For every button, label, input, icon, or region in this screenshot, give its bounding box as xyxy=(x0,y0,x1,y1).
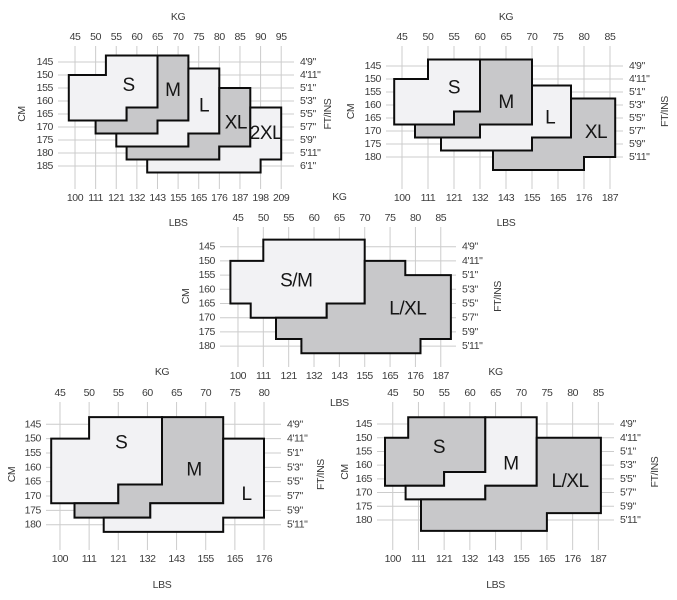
axis-title-kg: KG xyxy=(488,366,503,378)
ft-tick-label: 4'9" xyxy=(620,418,636,430)
axis-title-lbs: LBS xyxy=(153,579,172,591)
kg-tick-label: 55 xyxy=(439,387,450,399)
ft-tick-label: 5'11" xyxy=(620,514,641,526)
cm-tick-label: 175 xyxy=(199,326,216,338)
kg-tick-label: 50 xyxy=(90,31,101,43)
lbs-tick-label: 155 xyxy=(170,192,187,204)
cm-tick-label: 180 xyxy=(356,514,373,526)
kg-tick-label: 60 xyxy=(131,31,142,43)
lbs-tick-label: 187 xyxy=(433,370,450,382)
cm-tick-label: 165 xyxy=(37,108,54,120)
lbs-tick-label: 198 xyxy=(252,192,269,204)
lbs-tick-label: 187 xyxy=(232,192,249,204)
kg-tick-label: 75 xyxy=(542,387,553,399)
ft-tick-label: 5'9" xyxy=(629,138,645,150)
cm-tick-label: 180 xyxy=(199,340,216,352)
kg-tick-label: 55 xyxy=(449,31,460,43)
lbs-tick-label: 111 xyxy=(88,192,103,204)
kg-tick-label: 45 xyxy=(55,387,66,399)
kg-tick-label: 65 xyxy=(171,387,182,399)
kg-tick-label: 55 xyxy=(113,387,124,399)
ft-tick-label: 5'3" xyxy=(300,95,316,107)
lbs-tick-label: 143 xyxy=(331,370,348,382)
kg-tick-label: 45 xyxy=(387,387,398,399)
ft-tick-label: 5'5" xyxy=(287,476,303,488)
lbs-tick-label: 100 xyxy=(52,553,69,565)
cm-tick-label: 160 xyxy=(356,459,373,471)
cm-tick-label: 170 xyxy=(199,312,216,324)
size-chart-page: SMLXL2XL45505560657075808590951001111211… xyxy=(0,0,677,600)
kg-tick-label: 60 xyxy=(464,387,475,399)
ft-tick-label: 5'1" xyxy=(462,269,478,281)
size-label-l: L xyxy=(545,108,555,129)
axis-title-cm: CM xyxy=(16,106,28,122)
kg-tick-label: 70 xyxy=(173,31,184,43)
kg-tick-label: 70 xyxy=(527,31,538,43)
cm-tick-label: 150 xyxy=(25,433,42,445)
lbs-tick-label: 209 xyxy=(273,192,290,204)
size-label-s: S xyxy=(115,432,127,453)
lbs-tick-label: 111 xyxy=(256,370,271,382)
lbs-tick-label: 143 xyxy=(498,192,515,204)
kg-tick-label: 90 xyxy=(255,31,266,43)
cm-tick-label: 175 xyxy=(356,500,373,512)
kg-tick-label: 50 xyxy=(84,387,95,399)
lbs-tick-label: 155 xyxy=(198,553,215,565)
lbs-tick-label: 121 xyxy=(281,370,298,382)
kg-tick-label: 50 xyxy=(413,387,424,399)
axis-title-kg: KG xyxy=(155,366,170,378)
ft-tick-label: 4'9" xyxy=(629,60,645,72)
cm-tick-label: 155 xyxy=(37,82,54,94)
size-label-s: S xyxy=(433,437,445,458)
axis-title-ft-ins: FT/INS xyxy=(492,281,504,312)
size-label-s-m: S/M xyxy=(280,270,312,291)
kg-tick-label: 60 xyxy=(475,31,486,43)
kg-tick-label: 85 xyxy=(605,31,616,43)
size-chart-middle: S/ML/XL455055606570758085100111121132143… xyxy=(180,191,504,409)
lbs-tick-label: 176 xyxy=(211,192,228,204)
kg-tick-label: 95 xyxy=(276,31,287,43)
cm-tick-label: 165 xyxy=(199,298,216,310)
ft-tick-label: 5'5" xyxy=(620,473,636,485)
kg-tick-label: 70 xyxy=(516,387,527,399)
lbs-tick-label: 132 xyxy=(139,553,156,565)
cm-tick-label: 160 xyxy=(365,99,382,111)
cm-tick-label: 150 xyxy=(199,255,216,267)
lbs-tick-label: 165 xyxy=(191,192,208,204)
ft-tick-label: 5'1" xyxy=(620,445,636,457)
size-label-m: M xyxy=(503,453,518,474)
size-label-m: M xyxy=(186,460,201,481)
cm-tick-label: 145 xyxy=(365,60,382,72)
kg-tick-label: 75 xyxy=(193,31,204,43)
ft-tick-label: 5'9" xyxy=(462,326,478,338)
lbs-tick-label: 143 xyxy=(149,192,166,204)
axis-title-lbs: LBS xyxy=(330,397,349,409)
ft-tick-label: 5'1" xyxy=(287,447,303,459)
cm-tick-label: 170 xyxy=(365,125,382,137)
lbs-tick-label: 187 xyxy=(590,553,607,565)
axis-title-cm: CM xyxy=(345,104,357,120)
lbs-tick-label: 176 xyxy=(564,553,581,565)
lbs-tick-label: 121 xyxy=(110,553,127,565)
size-label-m: M xyxy=(165,80,180,101)
ft-tick-label: 5'5" xyxy=(300,108,316,120)
lbs-tick-label: 121 xyxy=(446,192,463,204)
lbs-tick-label: 132 xyxy=(306,370,323,382)
axis-title-ft-ins: FT/INS xyxy=(659,96,671,127)
cm-tick-label: 170 xyxy=(25,490,42,502)
cm-tick-label: 160 xyxy=(199,283,216,295)
ft-tick-label: 5'11" xyxy=(462,340,483,352)
kg-tick-label: 45 xyxy=(397,31,408,43)
kg-tick-label: 80 xyxy=(259,387,270,399)
ft-tick-label: 5'9" xyxy=(300,134,316,146)
kg-tick-label: 60 xyxy=(142,387,153,399)
ft-tick-label: 5'7" xyxy=(629,125,645,137)
lbs-tick-label: 111 xyxy=(82,553,97,565)
ft-tick-label: 5'11" xyxy=(287,519,308,531)
cm-tick-label: 165 xyxy=(25,476,42,488)
ft-tick-label: 4'9" xyxy=(287,418,303,430)
ft-tick-label: 5'7" xyxy=(462,312,478,324)
kg-tick-label: 70 xyxy=(200,387,211,399)
size-label-m: M xyxy=(498,92,513,113)
lbs-tick-label: 155 xyxy=(357,370,374,382)
size-charts-canvas: SMLXL2XL45505560657075808590951001111211… xyxy=(0,0,677,600)
lbs-tick-label: 111 xyxy=(421,192,436,204)
cm-tick-label: 165 xyxy=(356,473,373,485)
size-label-s: S xyxy=(123,75,135,96)
size-chart-bottom-right: SML/XL4550556065707580851001111211321431… xyxy=(339,366,661,591)
kg-tick-label: 70 xyxy=(359,212,370,224)
cm-tick-label: 150 xyxy=(365,73,382,85)
ft-tick-label: 5'11" xyxy=(629,151,650,163)
ft-tick-label: 4'11" xyxy=(287,433,308,445)
kg-tick-label: 55 xyxy=(111,31,122,43)
lbs-tick-label: 165 xyxy=(539,553,556,565)
cm-tick-label: 160 xyxy=(37,95,54,107)
size-chart-bottom-left: SML4550556065707580100111121132143155165… xyxy=(6,366,327,591)
cm-tick-label: 165 xyxy=(365,112,382,124)
size-label-l-xl: L/XL xyxy=(552,471,589,492)
ft-tick-label: 4'11" xyxy=(620,432,641,444)
ft-tick-label: 4'11" xyxy=(300,69,321,81)
axis-title-kg: KG xyxy=(332,191,347,203)
cm-tick-label: 175 xyxy=(25,504,42,516)
ft-tick-label: 6'1" xyxy=(300,160,316,172)
axis-title-ft-ins: FT/INS xyxy=(322,98,334,129)
axis-title-lbs: LBS xyxy=(169,217,188,229)
lbs-tick-label: 100 xyxy=(394,192,411,204)
lbs-tick-label: 165 xyxy=(550,192,567,204)
ft-tick-label: 5'7" xyxy=(287,490,303,502)
axis-title-ft-ins: FT/INS xyxy=(649,456,661,487)
lbs-tick-label: 187 xyxy=(602,192,619,204)
ft-tick-label: 4'11" xyxy=(629,73,650,85)
ft-tick-label: 4'11" xyxy=(462,255,483,267)
kg-tick-label: 45 xyxy=(233,212,244,224)
lbs-tick-label: 121 xyxy=(436,553,453,565)
kg-tick-label: 65 xyxy=(490,387,501,399)
lbs-tick-label: 100 xyxy=(385,553,402,565)
cm-tick-label: 150 xyxy=(37,69,54,81)
kg-tick-label: 85 xyxy=(435,212,446,224)
kg-tick-label: 80 xyxy=(567,387,578,399)
size-label-l: L xyxy=(241,484,251,505)
ft-tick-label: 5'5" xyxy=(462,298,478,310)
axis-title-cm: CM xyxy=(180,289,192,305)
cm-tick-label: 180 xyxy=(365,151,382,163)
ft-tick-label: 5'11" xyxy=(300,147,321,159)
cm-tick-label: 150 xyxy=(356,432,373,444)
cm-tick-label: 175 xyxy=(365,138,382,150)
lbs-tick-label: 155 xyxy=(524,192,541,204)
cm-tick-label: 155 xyxy=(356,445,373,457)
kg-tick-label: 75 xyxy=(385,212,396,224)
lbs-tick-label: 165 xyxy=(382,370,399,382)
lbs-tick-label: 132 xyxy=(472,192,489,204)
ft-tick-label: 5'1" xyxy=(629,86,645,98)
lbs-tick-label: 176 xyxy=(576,192,593,204)
ft-tick-label: 4'9" xyxy=(300,56,316,68)
axis-title-kg: KG xyxy=(171,11,186,23)
kg-tick-label: 65 xyxy=(334,212,345,224)
lbs-tick-label: 132 xyxy=(129,192,146,204)
ft-tick-label: 5'3" xyxy=(620,459,636,471)
axis-title-kg: KG xyxy=(499,11,514,23)
lbs-tick-label: 176 xyxy=(407,370,424,382)
kg-tick-label: 85 xyxy=(593,387,604,399)
lbs-tick-label: 176 xyxy=(256,553,273,565)
size-chart-top-right: SMLXL45505560657075808510011112113214315… xyxy=(345,11,671,229)
axis-title-ft-ins: FT/INS xyxy=(315,459,327,490)
cm-tick-label: 170 xyxy=(37,121,54,133)
kg-tick-label: 85 xyxy=(235,31,246,43)
cm-tick-label: 185 xyxy=(37,160,54,172)
kg-tick-label: 80 xyxy=(579,31,590,43)
lbs-tick-label: 165 xyxy=(227,553,244,565)
cm-tick-label: 180 xyxy=(25,519,42,531)
kg-tick-label: 50 xyxy=(423,31,434,43)
ft-tick-label: 5'3" xyxy=(287,461,303,473)
lbs-tick-label: 155 xyxy=(513,553,530,565)
size-label-s: S xyxy=(448,78,460,99)
ft-tick-label: 5'7" xyxy=(300,121,316,133)
cm-tick-label: 160 xyxy=(25,461,42,473)
size-label-xl: XL xyxy=(225,113,247,134)
size-label-l: L xyxy=(199,96,209,117)
size-label-2xl: 2XL xyxy=(250,123,282,144)
ft-tick-label: 5'9" xyxy=(620,500,636,512)
cm-tick-label: 145 xyxy=(356,418,373,430)
kg-tick-label: 50 xyxy=(258,212,269,224)
cm-tick-label: 145 xyxy=(199,241,216,253)
kg-tick-label: 80 xyxy=(214,31,225,43)
axis-title-lbs: LBS xyxy=(486,579,505,591)
ft-tick-label: 5'9" xyxy=(287,504,303,516)
axis-title-cm: CM xyxy=(6,467,18,483)
kg-tick-label: 45 xyxy=(70,31,81,43)
ft-tick-label: 5'7" xyxy=(620,487,636,499)
lbs-tick-label: 111 xyxy=(411,553,426,565)
axis-title-lbs: LBS xyxy=(497,217,516,229)
size-label-xl: XL xyxy=(585,122,607,143)
ft-tick-label: 5'1" xyxy=(300,82,316,94)
cm-tick-label: 155 xyxy=(25,447,42,459)
kg-tick-label: 60 xyxy=(309,212,320,224)
kg-tick-label: 55 xyxy=(283,212,294,224)
ft-tick-label: 5'3" xyxy=(462,283,478,295)
size-label-l-xl: L/XL xyxy=(389,299,426,320)
ft-tick-label: 5'3" xyxy=(629,99,645,111)
kg-tick-label: 65 xyxy=(501,31,512,43)
lbs-tick-label: 121 xyxy=(108,192,125,204)
kg-tick-label: 75 xyxy=(553,31,564,43)
lbs-tick-label: 143 xyxy=(168,553,185,565)
kg-tick-label: 80 xyxy=(410,212,421,224)
cm-tick-label: 145 xyxy=(25,418,42,430)
cm-tick-label: 170 xyxy=(356,487,373,499)
lbs-tick-label: 100 xyxy=(67,192,84,204)
size-chart-top-left: SMLXL2XL45505560657075808590951001111211… xyxy=(16,11,334,229)
kg-tick-label: 65 xyxy=(152,31,163,43)
lbs-tick-label: 132 xyxy=(462,553,479,565)
cm-tick-label: 155 xyxy=(199,269,216,281)
cm-tick-label: 155 xyxy=(365,86,382,98)
cm-tick-label: 145 xyxy=(37,56,54,68)
ft-tick-label: 5'5" xyxy=(629,112,645,124)
cm-tick-label: 175 xyxy=(37,134,54,146)
lbs-tick-label: 100 xyxy=(230,370,247,382)
kg-tick-label: 75 xyxy=(229,387,240,399)
ft-tick-label: 4'9" xyxy=(462,241,478,253)
lbs-tick-label: 143 xyxy=(487,553,504,565)
axis-title-cm: CM xyxy=(339,464,351,480)
cm-tick-label: 180 xyxy=(37,147,54,159)
